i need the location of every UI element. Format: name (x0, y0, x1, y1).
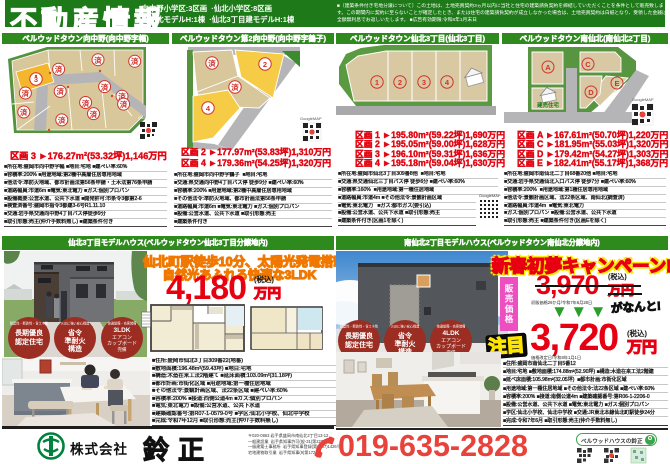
svg-text:済: 済 (20, 107, 28, 117)
svg-text:D: D (588, 88, 594, 97)
svg-text:済: 済 (208, 58, 216, 68)
svg-text:済: 済 (55, 64, 63, 74)
svg-text:GoogleMAP: GoogleMAP (138, 115, 160, 120)
svg-text:3: 3 (422, 78, 426, 87)
svg-text:済: 済 (120, 99, 128, 109)
svg-text:耐震性・断熱性・省エネ性: 耐震性・断熱性・省エネ性 (340, 324, 379, 329)
svg-text:E: E (614, 79, 619, 88)
svg-text:済: 済 (101, 82, 109, 92)
svg-text:GoogleMAP: GoogleMAP (632, 97, 654, 102)
svg-text:快適設備・充実装備: 快適設備・充実装備 (108, 321, 137, 326)
svg-text:済: 済 (58, 115, 66, 125)
svg-text:カップボード: カップボード (107, 340, 137, 347)
svg-text:2: 2 (398, 78, 402, 87)
svg-text:3LDK: 3LDK (114, 327, 131, 334)
svg-text:GoogleMAP: GoogleMAP (300, 116, 322, 121)
svg-text:火災に強い安心構造: 火災に強い安心構造 (61, 321, 90, 326)
svg-text:認定住宅: 認定住宅 (345, 340, 373, 349)
svg-text:建売住宅: 建売住宅 (537, 101, 560, 109)
svg-text:済: 済 (131, 56, 139, 66)
svg-text:構造: 構造 (68, 344, 83, 353)
svg-text:済: 済 (94, 55, 102, 65)
svg-text:カップボード: カップボード (436, 343, 466, 350)
svg-text:準耐火: 準耐火 (65, 336, 87, 345)
svg-text:省令: 省令 (397, 331, 413, 340)
svg-text:済: 済 (56, 86, 64, 96)
svg-text:耐震性・断熱性・省エネ性: 耐震性・断熱性・省エネ性 (10, 321, 49, 326)
svg-text:C: C (585, 60, 591, 69)
svg-text:長期優良: 長期優良 (15, 328, 43, 337)
svg-text:済: 済 (90, 109, 98, 119)
svg-text:済: 済 (231, 82, 239, 92)
svg-text:火災に強い安心構造: 火災に強い安心構造 (391, 324, 420, 329)
svg-text:準耐火: 準耐火 (395, 339, 417, 348)
svg-text:省令: 省令 (67, 328, 83, 337)
svg-text:4LDK: 4LDK (443, 330, 460, 337)
svg-text:済: 済 (22, 88, 30, 98)
svg-text:1: 1 (375, 78, 379, 87)
svg-text:A: A (545, 63, 551, 72)
svg-text:快適設備・充実装備: 快適設備・充実装備 (437, 324, 466, 329)
svg-text:2: 2 (263, 60, 267, 69)
svg-text:認定住宅: 認定住宅 (15, 337, 43, 346)
svg-text:完備: 完備 (118, 346, 127, 353)
svg-text:長期優良: 長期優良 (345, 331, 373, 340)
svg-text:済: 済 (82, 98, 90, 108)
